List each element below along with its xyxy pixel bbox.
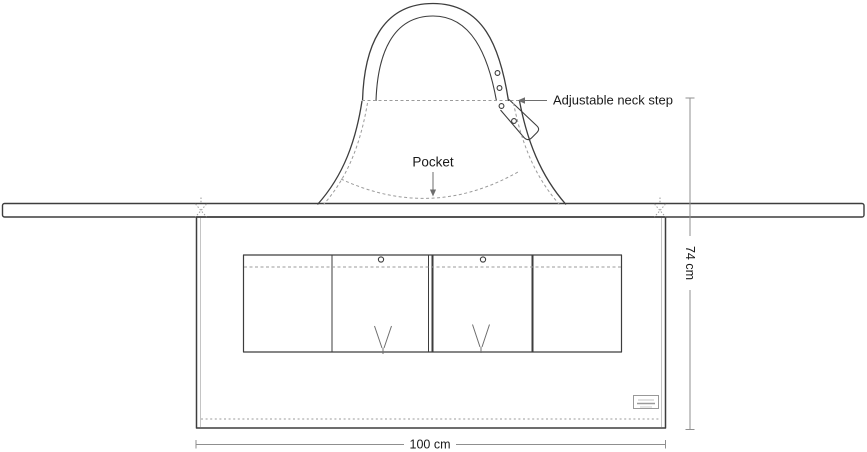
- dimension-group: [196, 98, 695, 449]
- pocket-arrowhead-icon: [430, 190, 436, 197]
- skirt-panel: [197, 217, 666, 428]
- pen-slot-mark: [375, 326, 392, 354]
- bartack-x-right: [655, 198, 666, 218]
- rivet-icon: [480, 257, 485, 262]
- brand-label: [634, 396, 659, 409]
- waistband: [3, 204, 865, 218]
- apron-flat-sketch: Pocket Adjustable neck step 74 cm 100 cm: [0, 0, 867, 452]
- snap-button-icon: [495, 71, 500, 76]
- snap-button-icon: [512, 119, 517, 124]
- pen-slot-mark: [473, 325, 490, 354]
- bartack-x-left: [196, 198, 207, 218]
- snap-button-icon: [497, 86, 502, 91]
- rivet-icon: [378, 257, 383, 262]
- strap-tail: [501, 100, 539, 140]
- height-dimension-value: 74 cm: [683, 246, 697, 280]
- bib-edge-left: [318, 101, 363, 205]
- skirt-inner-seam-group: [201, 218, 662, 427]
- apron-technical-drawing-page: Pocket Adjustable neck step 74 cm 100 cm: [0, 0, 867, 452]
- pocket-opening-seam: [341, 172, 518, 198]
- neck-strap-label: Adjustable neck step: [553, 93, 673, 108]
- snap-button-icon: [499, 104, 504, 109]
- apron-outline-group: [3, 4, 865, 429]
- bib-side-seam-right: [514, 103, 560, 205]
- pocket-label: Pocket: [412, 155, 454, 170]
- seam-group: [196, 101, 666, 420]
- neck-strap-arrowhead-icon: [518, 97, 526, 103]
- annotation-arrow-group: [430, 97, 547, 196]
- width-dimension-value: 100 cm: [410, 438, 451, 452]
- neck-strap-inner-edge: [376, 16, 497, 101]
